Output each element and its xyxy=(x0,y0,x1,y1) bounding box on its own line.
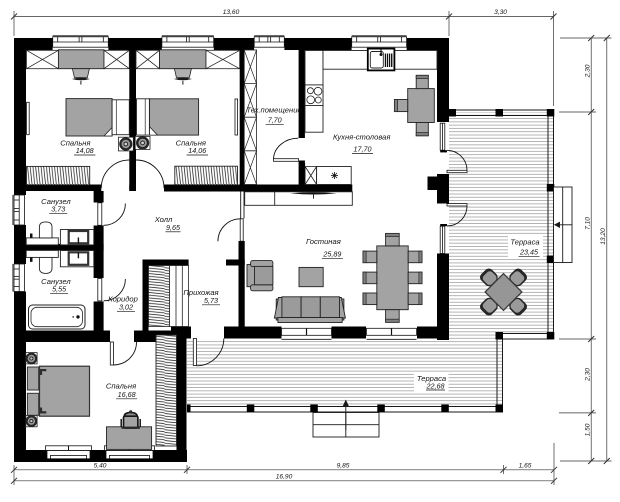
svg-text:3,30: 3,30 xyxy=(494,9,507,16)
svg-text:7,10: 7,10 xyxy=(584,217,591,230)
svg-text:14,06: 14,06 xyxy=(188,146,206,155)
svg-text:1,65: 1,65 xyxy=(519,463,532,470)
svg-text:5,73: 5,73 xyxy=(204,296,218,305)
svg-text:13,20: 13,20 xyxy=(600,228,607,245)
svg-text:Спальня: Спальня xyxy=(106,381,136,390)
svg-text:Гостиная: Гостиная xyxy=(306,237,341,246)
svg-text:Терраса: Терраса xyxy=(510,238,539,247)
svg-text:25,89: 25,89 xyxy=(322,250,341,259)
svg-text:3,02: 3,02 xyxy=(119,303,133,312)
svg-text:22,68: 22,68 xyxy=(426,381,445,390)
svg-text:7,70: 7,70 xyxy=(268,116,282,125)
svg-text:Кухня-столовая: Кухня-столовая xyxy=(333,133,390,142)
svg-text:16,68: 16,68 xyxy=(118,390,136,399)
svg-text:3,73: 3,73 xyxy=(51,205,65,214)
svg-text:2,30: 2,30 xyxy=(584,64,591,78)
svg-text:14,08: 14,08 xyxy=(76,146,94,155)
svg-text:9,65: 9,65 xyxy=(166,223,181,232)
svg-text:16,90: 16,90 xyxy=(276,474,293,481)
svg-text:5,55: 5,55 xyxy=(52,285,67,294)
svg-text:Тех.помещение: Тех.помещение xyxy=(246,106,301,115)
svg-text:9,85: 9,85 xyxy=(337,463,350,470)
svg-text:23,45: 23,45 xyxy=(519,248,539,257)
svg-text:13,60: 13,60 xyxy=(223,9,240,16)
svg-text:2,30: 2,30 xyxy=(584,368,591,382)
svg-text:5,40: 5,40 xyxy=(94,463,107,470)
svg-text:1,50: 1,50 xyxy=(584,423,591,436)
svg-text:17,70: 17,70 xyxy=(354,145,372,154)
